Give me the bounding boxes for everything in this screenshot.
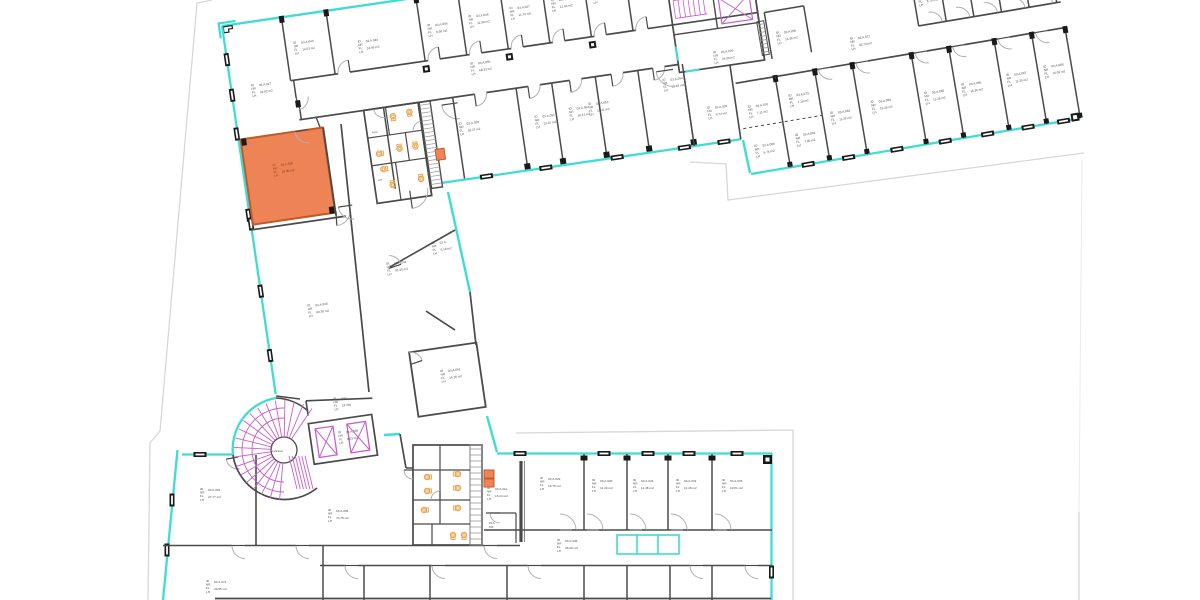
- svg-text:IDNRFLLH: IDNRFLLH: [588, 101, 595, 116]
- svg-text:IDNRFLLH: IDNRFLLH: [440, 368, 447, 383]
- svg-text:IDNRFLLH: IDNRFLLH: [427, 23, 434, 38]
- svg-text:16.24 m2: 16.24 m2: [495, 494, 508, 498]
- svg-text:IDNRFLLH: IDNRFLLH: [534, 114, 541, 129]
- svg-text:IDNRFLLH: IDNRFLLH: [509, 6, 516, 21]
- svg-text:03.A.083: 03.A.083: [838, 109, 851, 115]
- svg-text:03.A.001: 03.A.001: [208, 488, 221, 492]
- svg-text:IDNRFLLH: IDNRFLLH: [251, 83, 258, 98]
- svg-text:IDNRFLLH: IDNRFLLH: [592, 0, 599, 5]
- svg-text:IDNRFLLH: IDNRFLLH: [293, 40, 300, 55]
- svg-text:IDNRFLLH: IDNRFLLH: [557, 538, 562, 553]
- svg-text:03.A.008: 03.A.008: [346, 429, 359, 435]
- svg-text:25.98 m2: 25.98 m2: [722, 55, 736, 61]
- svg-text:11.25 m2: 11.25 m2: [933, 95, 946, 101]
- svg-text:IDNRFLLH: IDNRFLLH: [788, 93, 796, 108]
- svg-text:03.A.078: 03.A.078: [755, 102, 768, 108]
- svg-text:5.10 m2: 5.10 m2: [440, 246, 452, 252]
- svg-text:03.A.041: 03.A.041: [448, 367, 461, 373]
- svg-text:11.19 m2: 11.19 m2: [600, 486, 613, 490]
- svg-text:IDNRFLLH: IDNRFLLH: [357, 39, 364, 54]
- svg-text:03.A.020: 03.A.020: [466, 120, 479, 126]
- svg-text:Luftraum: Luftraum: [272, 449, 284, 453]
- svg-text:IDNRFLLH: IDNRFLLH: [550, 0, 557, 13]
- svg-text:03.A.047: 03.A.047: [517, 4, 530, 10]
- svg-text:92.73 m2: 92.73 m2: [859, 41, 873, 47]
- svg-text:11.90 m2: 11.90 m2: [477, 19, 490, 25]
- svg-text:11.48 m2: 11.48 m2: [641, 486, 654, 490]
- svg-text:03.A.033: 03.A.033: [730, 479, 743, 483]
- svg-text:03.A.051: 03.A.051: [542, 113, 555, 119]
- svg-text:03.A.055: 03.A.055: [478, 60, 491, 66]
- svg-text:03.A.045: 03.A.045: [435, 21, 448, 27]
- svg-text:24.45 m2: 24.45 m2: [366, 44, 380, 50]
- svg-text:IDNRFLLH: IDNRFLLH: [870, 99, 878, 114]
- svg-text:6.74 m2: 6.74 m2: [763, 149, 775, 155]
- svg-text:03.A.: 03.A.: [439, 240, 447, 245]
- svg-text:03.A.081: 03.A.081: [803, 131, 816, 137]
- svg-text:IDNRFLLH: IDNRFLLH: [1043, 64, 1051, 79]
- svg-text:16.35 m2: 16.35 m2: [880, 104, 894, 110]
- svg-text:7.18 m2: 7.18 m2: [797, 98, 809, 104]
- svg-text:34.82 m2: 34.82 m2: [260, 88, 274, 94]
- svg-text:03.A.046: 03.A.046: [476, 12, 489, 18]
- svg-text:IDNRFLLH: IDNRFLLH: [754, 143, 762, 158]
- svg-text:IDNRFLLH: IDNRFLLH: [333, 396, 340, 411]
- svg-text:03.A.056: 03.A.056: [784, 28, 797, 34]
- svg-text:9.99 m2: 9.99 m2: [436, 29, 448, 35]
- svg-text:IDNRFLLH: IDNRFLLH: [924, 90, 932, 105]
- svg-text:16.36 m2: 16.36 m2: [970, 87, 984, 93]
- svg-text:IDNRFLLH: IDNRFLLH: [722, 478, 727, 493]
- svg-text:IDNRFLLH: IDNRFLLH: [795, 132, 803, 147]
- svg-text:7.05 m2: 7.05 m2: [804, 138, 816, 144]
- svg-text:03.A.080: 03.A.080: [762, 142, 775, 148]
- svg-text:70.79 m2: 70.79 m2: [336, 516, 349, 520]
- svg-text:03.A.040: 03.A.040: [315, 302, 328, 308]
- svg-text:013: 013: [489, 525, 494, 529]
- svg-text:03.A.072: 03.A.072: [858, 34, 871, 40]
- svg-text:91.35 m2: 91.35 m2: [395, 267, 409, 273]
- svg-text:11.41 m2: 11.41 m2: [597, 107, 610, 113]
- svg-text:IDNRFLLH: IDNRFLLH: [961, 82, 969, 97]
- svg-text:IDNRFLLH: IDNRFLLH: [1006, 72, 1014, 87]
- svg-text:IDNRFLLH: IDNRFLLH: [830, 110, 838, 125]
- svg-text:03.A.032: 03.A.032: [684, 479, 697, 483]
- svg-text:IDNRFLLH: IDNRFLLH: [849, 36, 857, 51]
- svg-text:03.A.087: 03.A.087: [1014, 71, 1027, 77]
- svg-text:Vorr.: Vorr.: [378, 178, 384, 182]
- svg-text:03.A.084: 03.A.084: [878, 98, 891, 104]
- svg-text:14.16 m2: 14.16 m2: [449, 374, 463, 380]
- svg-text:27.77 m2: 27.77 m2: [208, 495, 221, 499]
- svg-text:03.A.086: 03.A.086: [969, 80, 982, 86]
- svg-text:03.A.017: 03.A.017: [259, 81, 272, 87]
- svg-text:03.A.029: 03.A.029: [548, 477, 561, 481]
- svg-text:8.74 m2: 8.74 m2: [716, 111, 728, 117]
- svg-text:13.36 m2: 13.36 m2: [785, 35, 799, 41]
- svg-text:11.75 m2: 11.75 m2: [518, 11, 531, 17]
- svg-text:IDNRFLLH: IDNRFLLH: [206, 579, 211, 594]
- svg-text:IDNRFLLH: IDNRFLLH: [917, 0, 925, 7]
- svg-text:03.A.026: 03.A.026: [715, 104, 728, 110]
- svg-text:03.A.079: 03.A.079: [796, 91, 809, 97]
- svg-text:IDNRFLLH: IDNRFLLH: [458, 121, 465, 136]
- svg-text:7.11 m2: 7.11 m2: [757, 109, 769, 115]
- svg-text:03.A.031: 03.A.031: [641, 479, 654, 483]
- svg-text:IDNRFLLH: IDNRFLLH: [328, 508, 333, 523]
- svg-text:IDNRFLLH: IDNRFLLH: [307, 303, 314, 318]
- svg-text:03.A.044: 03.A.044: [365, 38, 378, 44]
- svg-text:03.A.012: 03.A.012: [495, 487, 508, 491]
- svg-text:11.18 m2: 11.18 m2: [684, 486, 697, 490]
- svg-text:03.A.074: 03.A.074: [214, 580, 227, 584]
- svg-text:IDNRFLLH: IDNRFLLH: [200, 487, 205, 502]
- svg-text:IDNRFLLH: IDNRFLLH: [468, 14, 475, 29]
- svg-text:03.A.085: 03.A.085: [932, 89, 945, 95]
- svg-text:12.63 m2: 12.63 m2: [560, 3, 574, 9]
- svg-text:03.A.054: 03.A.054: [670, 76, 683, 82]
- svg-text:03.A.053: 03.A.053: [596, 100, 609, 106]
- svg-text:16.78 m2: 16.78 m2: [548, 484, 561, 488]
- svg-text:IDNRFLLH: IDNRFLLH: [540, 476, 545, 491]
- svg-text:IDNRFLLH: IDNRFLLH: [775, 30, 783, 45]
- svg-text:03.A.025: 03.A.025: [721, 48, 734, 54]
- svg-text:38.20 m2: 38.20 m2: [565, 546, 578, 550]
- svg-text:11.25 m2: 11.25 m2: [839, 115, 852, 121]
- svg-text:IDNRFLLH: IDNRFLLH: [747, 104, 755, 119]
- svg-text:IDNRFLLH: IDNRFLLH: [707, 105, 714, 120]
- svg-text:IDNRFLLH: IDNRFLLH: [713, 50, 720, 65]
- svg-text:IDNRFLLH: IDNRFLLH: [487, 486, 492, 501]
- svg-text:IDNRFLLH: IDNRFLLH: [568, 106, 575, 121]
- svg-text:03.A.005: 03.A.005: [336, 509, 349, 513]
- svg-text:IDNRFLLH: IDNRFLLH: [431, 240, 438, 255]
- svg-text:15.49 m2: 15.49 m2: [671, 83, 685, 89]
- svg-text:68.33 m2: 68.33 m2: [479, 66, 493, 72]
- svg-text:11.25 m2: 11.25 m2: [1015, 77, 1028, 83]
- svg-text:03.A.088: 03.A.088: [1051, 62, 1064, 68]
- svg-text:03.A.048: 03.A.048: [559, 0, 572, 2]
- svg-text:03.A.: 03.A.: [489, 521, 495, 525]
- svg-text:19.51 m2: 19.51 m2: [730, 486, 743, 490]
- svg-text:03.A.030: 03.A.030: [600, 479, 613, 483]
- svg-text:IDNRFLLH: IDNRFLLH: [592, 478, 597, 493]
- svg-text:IDNRFLLH: IDNRFLLH: [338, 430, 345, 445]
- svg-text:28.37 m2: 28.37 m2: [467, 127, 481, 133]
- svg-text:60.30 m2: 60.30 m2: [316, 309, 330, 315]
- svg-text:18 Stg: 18 Stg: [342, 402, 352, 407]
- svg-text:03.A.043: 03.A.043: [301, 39, 314, 45]
- svg-text:14.53 m2: 14.53 m2: [302, 46, 316, 52]
- svg-text:IDNRFLLH: IDNRFLLH: [633, 478, 638, 493]
- svg-text:03.A.036: 03.A.036: [565, 539, 578, 543]
- svg-text:11.36 m2: 11.36 m2: [601, 0, 614, 1]
- svg-text:14.03 m2: 14.03 m2: [1052, 69, 1066, 75]
- svg-text:IDNRFLLH: IDNRFLLH: [676, 478, 681, 493]
- svg-text:8.79 m2: 8.79 m2: [926, 0, 938, 3]
- svg-text:13.22 m2: 13.22 m2: [543, 120, 557, 126]
- svg-text:49.95 m2: 49.95 m2: [214, 587, 227, 591]
- svg-text:IDNRFLLH: IDNRFLLH: [470, 61, 477, 76]
- svg-text:Putzr.: Putzr.: [372, 131, 379, 135]
